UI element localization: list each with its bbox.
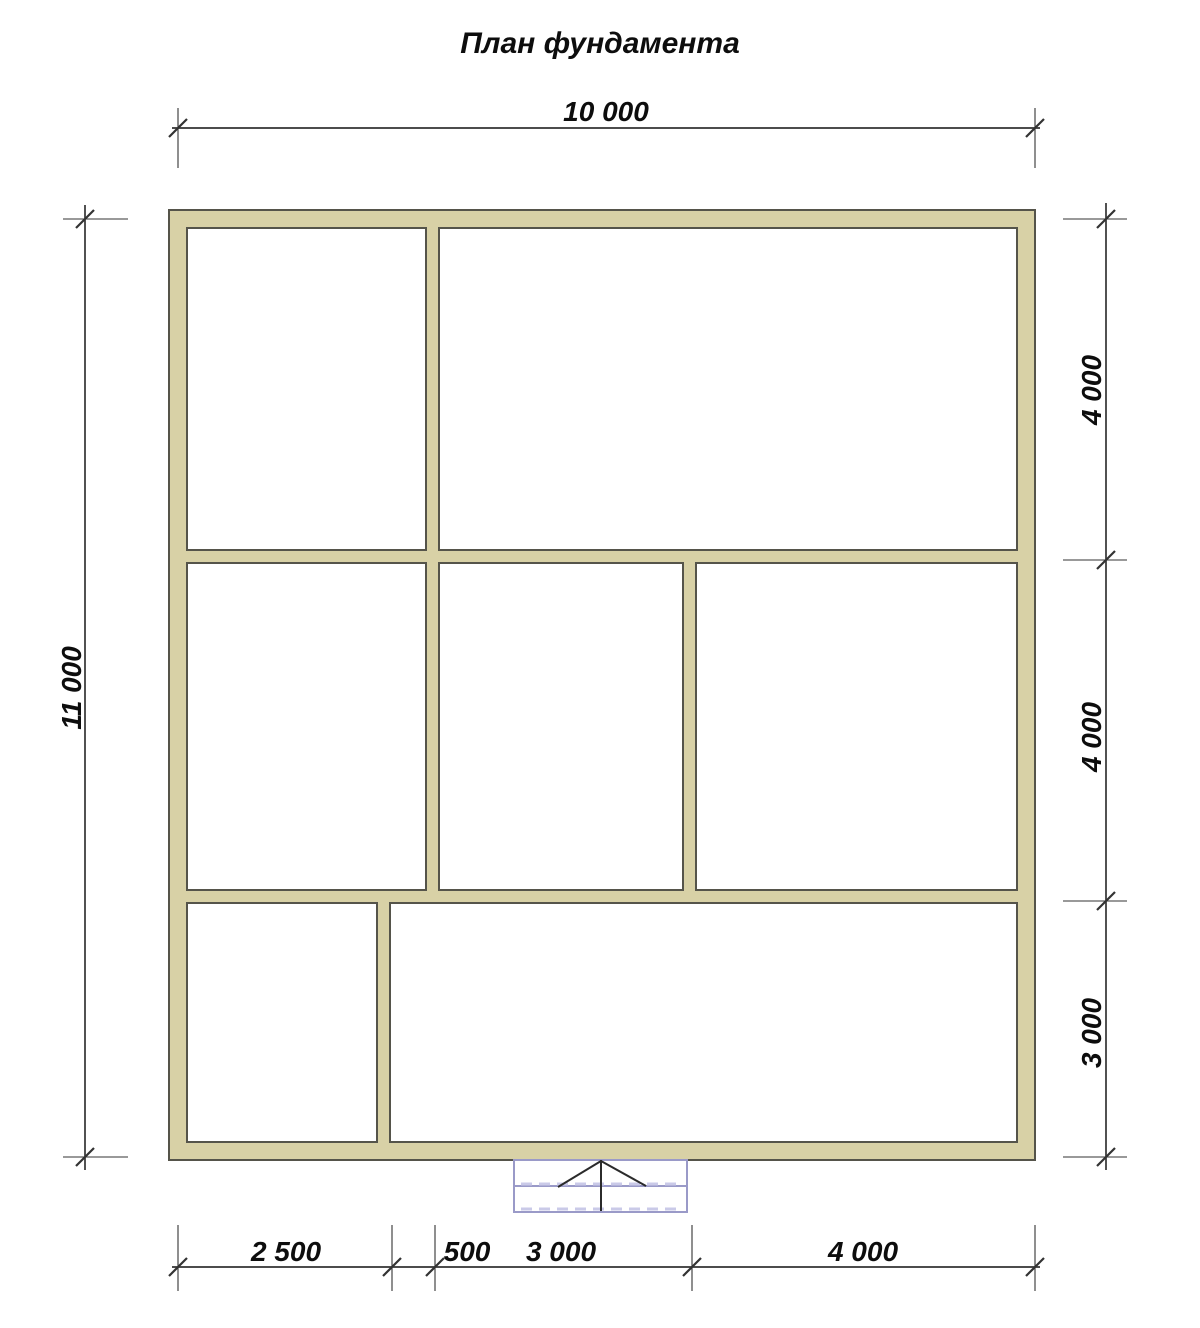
foundation-walls (169, 210, 1035, 1160)
room-middle-left (187, 563, 426, 890)
room-bottom-left (187, 903, 377, 1142)
room-top-right (439, 228, 1017, 550)
drawing-sheet: План фундамента 10 000 11 000 (0, 0, 1200, 1328)
dim-label-right-bottom: 3 000 (1076, 998, 1107, 1068)
room-middle-right (696, 563, 1017, 890)
room-top-left (187, 228, 426, 550)
dim-label-bottom-4: 4 000 (827, 1236, 898, 1267)
room-middle-center (439, 563, 683, 890)
page-title: План фундамента (460, 27, 740, 60)
dim-label-right-top: 4 000 (1076, 355, 1107, 426)
dimension-top: 10 000 (169, 96, 1044, 168)
dim-label-overall-height: 11 000 (56, 646, 87, 730)
dim-label-right-middle: 4 000 (1076, 702, 1107, 773)
foundation-plan-svg: План фундамента 10 000 11 000 (0, 0, 1200, 1328)
porch-steps (514, 1160, 687, 1212)
dimension-left: 11 000 (56, 205, 128, 1170)
dimension-right: 4 000 4 000 3 000 (1063, 203, 1127, 1170)
dim-label-bottom-3: 3 000 (526, 1236, 596, 1267)
dim-label-overall-width: 10 000 (563, 96, 649, 127)
room-bottom-right (390, 903, 1017, 1142)
dimension-bottom: 2 500 500 3 000 4 000 (169, 1225, 1044, 1291)
dim-label-bottom-2: 500 (444, 1236, 491, 1267)
dim-label-bottom-1: 2 500 (250, 1236, 321, 1267)
